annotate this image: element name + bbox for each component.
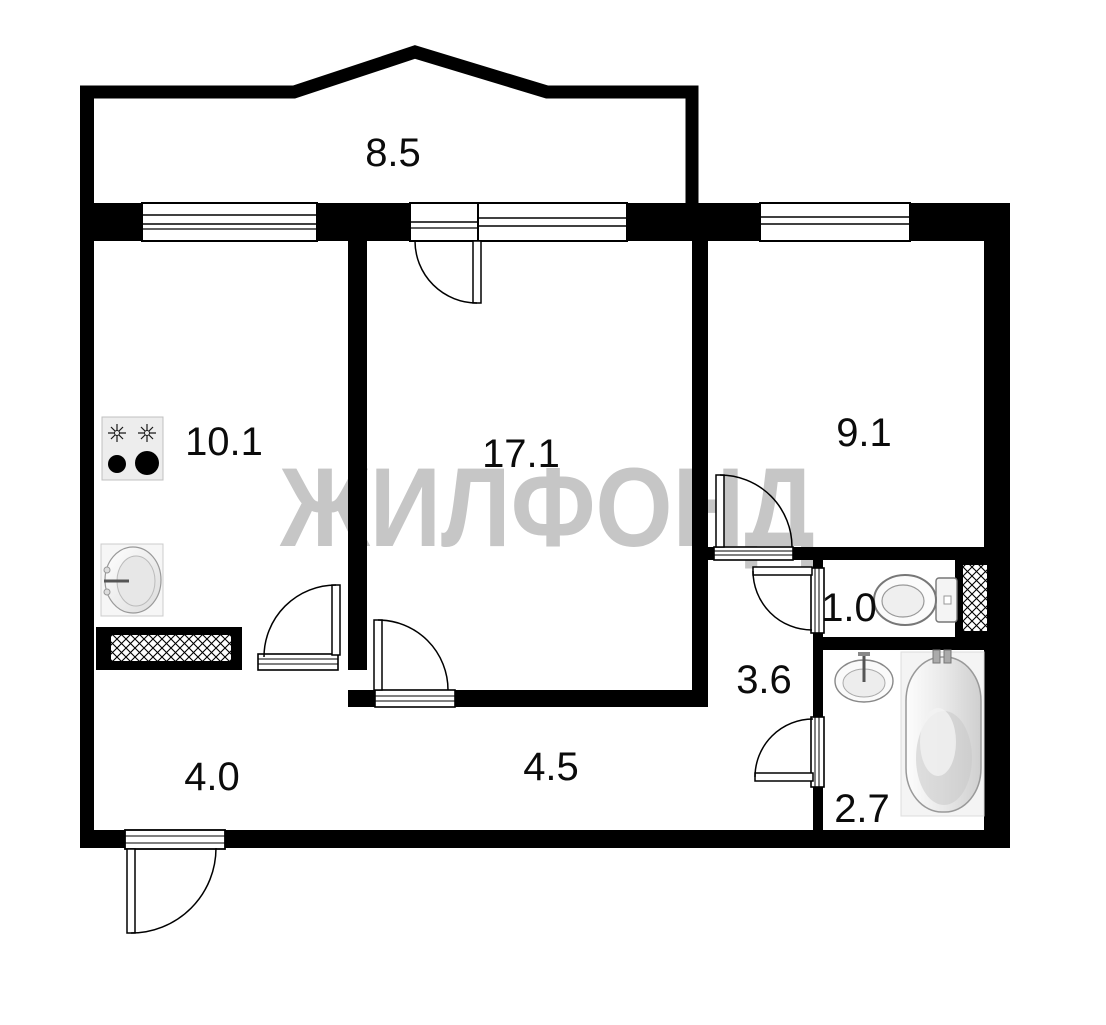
wc-south-wall: [813, 637, 990, 650]
balcony-area-label: 8.5: [365, 131, 421, 175]
bathroom-area-label: 2.7: [834, 787, 890, 831]
right-outer-wall: [984, 203, 1010, 848]
left-outer-wall: [80, 92, 94, 848]
facade-wall-segment: [317, 203, 410, 241]
kitchen-door-sill: [258, 654, 338, 670]
bottom-wall-right-segment: [225, 830, 1010, 848]
bathroom-door-swing-arc: [755, 719, 813, 777]
bedroom-door-sill: [714, 547, 793, 560]
floor-plan-drawing: ЖИЛФОНД: [0, 0, 1106, 1025]
facade-wall-segment: [627, 203, 760, 241]
entrance-door-sill: [125, 830, 225, 849]
bath-sink-icon: [835, 652, 893, 702]
bedroom-area-label: 9.1: [836, 411, 892, 455]
balcony-door-swing-arc: [415, 241, 477, 303]
floor-plan-page: ЖИЛФОНД: [0, 0, 1106, 1025]
living-room-door: [374, 620, 455, 707]
kitchen-door-swing-arc: [264, 585, 336, 657]
wc-door-swing-arc: [753, 571, 812, 630]
entrance-door: [125, 830, 225, 933]
vent-shaft-hatch-icon: [962, 564, 988, 632]
living-door-sill: [375, 690, 455, 707]
bathtub-icon: [901, 650, 984, 816]
kitchen-door-leaf: [332, 585, 340, 655]
balcony-parapet-wall: [87, 52, 693, 203]
corridor-left-area-label: 4.0: [184, 755, 240, 799]
living-bedroom-wall: [692, 241, 708, 707]
balcony-door: [415, 241, 481, 303]
bedroom-door-leaf: [716, 475, 724, 547]
facade-wall-segment: [94, 203, 142, 241]
stove-icon: [102, 417, 163, 480]
balcony-door-leaf: [473, 241, 481, 303]
bottom-wall-left-segment: [80, 830, 125, 848]
bathroom-door: [755, 717, 824, 787]
entrance-door-swing-arc: [131, 848, 216, 933]
bathroom-door-leaf: [755, 773, 813, 781]
entrance-door-leaf: [127, 849, 135, 933]
facade-wall-segment: [910, 203, 984, 241]
wc-west-wall-top: [813, 560, 823, 568]
wc-door-leaf: [753, 567, 812, 575]
living-door-swing-arc: [378, 620, 448, 690]
wc-door: [753, 567, 824, 633]
toilet-icon: [874, 575, 957, 625]
vent-shaft-hatch-icon: [110, 634, 232, 662]
living-south-wall-left: [348, 690, 375, 707]
wc-area-label: 1.0: [821, 586, 877, 630]
corridor-right-area-label: 4.5: [523, 745, 579, 789]
bedroom-south-wall: [793, 547, 984, 560]
bath-west-wall-bottom: [813, 787, 823, 830]
living-balcony-window: [410, 203, 627, 241]
hallway-area-label: 3.6: [736, 658, 792, 702]
living-south-wall-right: [455, 690, 707, 707]
living-door-leaf: [374, 620, 382, 690]
kitchen-vent-shaft: [110, 634, 232, 662]
kitchen-sink-icon: [101, 544, 163, 616]
kitchen-area-label: 10.1: [185, 420, 263, 464]
kitchen-door: [258, 585, 340, 670]
kitchen-living-wall: [348, 241, 367, 670]
bedroom-window: [760, 203, 910, 241]
wc-vent-shaft: [962, 564, 988, 632]
living-room-area-label: 17.1: [482, 432, 560, 476]
kitchen-window: [142, 203, 317, 241]
